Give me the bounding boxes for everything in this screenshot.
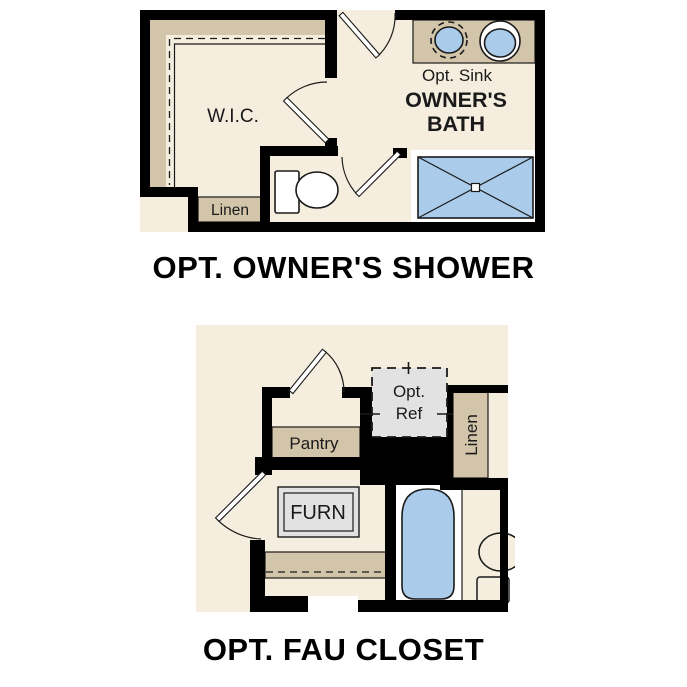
pantry-label: Pantry xyxy=(289,434,339,453)
shower-drain xyxy=(472,184,480,192)
fau-closet-floorplan: Pantry Opt. Ref Linen FURN xyxy=(190,318,515,618)
linen-label: Linen xyxy=(211,202,249,219)
owners-bath-label-line2: BATH xyxy=(427,112,485,136)
fau-closet-caption: OPT. FAU CLOSET xyxy=(0,632,687,668)
owners-shower-caption: OPT. OWNER'S SHOWER xyxy=(0,250,687,286)
bathtub xyxy=(402,489,454,599)
linen-label: Linen xyxy=(462,414,481,456)
wic-label: W.I.C. xyxy=(207,106,259,127)
owners-bath-label-line1: OWNER'S xyxy=(405,88,507,112)
sink xyxy=(480,21,520,61)
opt-sink-label: Opt. Sink xyxy=(422,66,492,85)
opt-ref-label-line1: Opt. xyxy=(393,382,425,401)
shower xyxy=(411,150,537,222)
opt-ref-label-line2: Ref xyxy=(396,404,423,423)
floorplan-page: { "page": { "background": "#ffffff" }, "… xyxy=(0,0,687,687)
doorway-threshold xyxy=(308,596,358,612)
closet-shelf xyxy=(265,552,393,578)
furn-label: FURN xyxy=(290,502,346,524)
owners-shower-floorplan: W.I.C. Linen Opt. Sink OWNER'S BATH xyxy=(135,5,550,240)
